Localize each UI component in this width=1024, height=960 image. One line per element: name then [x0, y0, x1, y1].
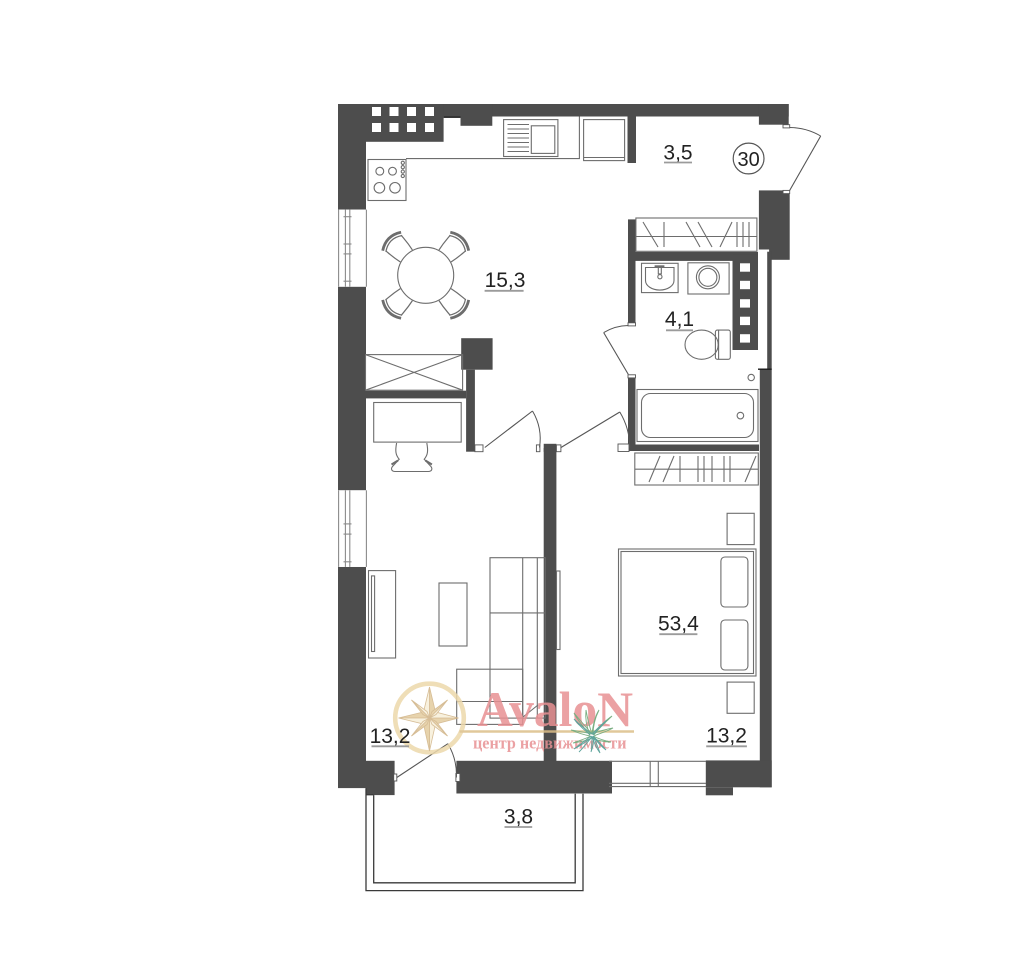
svg-text:15,3: 15,3: [485, 269, 526, 292]
svg-text:3,8: 3,8: [504, 806, 533, 829]
svg-text:центр недвижимости: центр недвижимости: [473, 734, 627, 753]
svg-text:13,2: 13,2: [370, 725, 411, 748]
svg-text:3,5: 3,5: [663, 142, 692, 165]
svg-text:4,1: 4,1: [665, 308, 694, 331]
svg-text:30: 30: [737, 149, 759, 171]
svg-text:53,4: 53,4: [658, 613, 699, 636]
svg-text:13,2: 13,2: [706, 725, 747, 748]
